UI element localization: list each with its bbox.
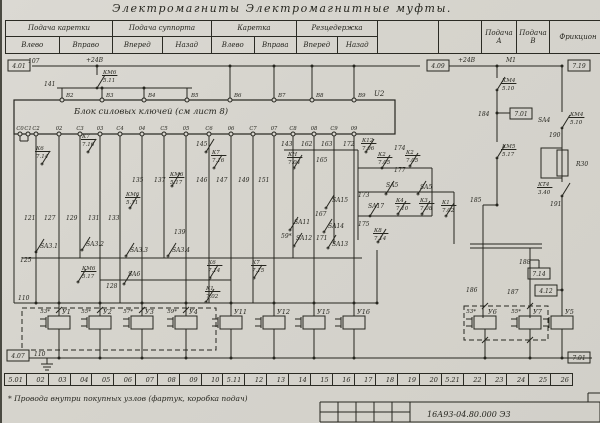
coil-У3 (131, 316, 153, 329)
zone-cell: 23 (485, 373, 508, 386)
zone-cell: 20 (419, 373, 442, 386)
junction-dot (143, 87, 146, 90)
terminal-label: С3 (76, 126, 84, 132)
junction-dot (35, 302, 38, 305)
zone-cell: 5.01 (4, 373, 27, 386)
wire-label: SA5 (420, 184, 432, 191)
terminal (184, 132, 188, 136)
terminal-label: 09 (351, 126, 358, 132)
coil-label: У5 (565, 308, 574, 316)
terminal (60, 98, 64, 102)
terminal (251, 132, 255, 136)
wire-label: 59* (281, 233, 292, 240)
wire-label: 139 (174, 229, 186, 236)
coil-label: У2 (103, 308, 112, 316)
coil-label: У3 (145, 308, 154, 316)
wire-label: +24В (458, 57, 476, 64)
wire-label: 186 (466, 287, 478, 294)
wire-label: 125 (20, 257, 32, 264)
sheet-ref-label: 7.14 (532, 271, 546, 278)
wire-label: SA15 (332, 197, 348, 204)
contact-ref-sheet: 7.06 (362, 146, 375, 152)
wire-label: 53* (40, 309, 50, 315)
junction-dot (496, 204, 499, 207)
sheet-ref-label: 4.09 (430, 63, 445, 70)
schematic-canvas: Блок силовых ключей (см лист 8)В2В3В4В5В… (2, 0, 600, 423)
zone-cell: 02 (26, 373, 49, 386)
junction-dot (273, 65, 276, 68)
wire-label: 141 (44, 81, 55, 88)
zone-cell: 17 (354, 373, 377, 386)
terminal-label: В4 (147, 93, 156, 99)
switch-contact (562, 115, 570, 128)
schematic-sheet: Электромагниты Электромагнитные муфты. П… (0, 0, 600, 423)
terminal (272, 98, 276, 102)
wire-label: 175 (358, 221, 370, 228)
zone-cell: 16 (332, 373, 355, 386)
resistor-body (541, 148, 562, 178)
coil-У4 (175, 316, 197, 329)
wire-label: 188 (519, 259, 531, 266)
terminal (118, 132, 122, 136)
zone-cell: 12 (244, 373, 267, 386)
wire-label: 127 (44, 215, 56, 222)
zone-cell: 5.21 (441, 373, 464, 386)
wire-label: 107 (28, 58, 40, 65)
wire-label: 137 (154, 177, 166, 184)
coil-У12 (263, 316, 285, 329)
terminal-label: С4 (116, 126, 123, 132)
coil-У6 (474, 316, 496, 329)
zone-ruler: 5.010203040506070809105.1112131415161718… (5, 373, 573, 388)
zone-cell: 08 (157, 373, 180, 386)
terminal-label: В7 (277, 93, 286, 99)
terminal (140, 132, 144, 136)
wire-label: 131 (88, 215, 99, 222)
wire-label: SA3.2 (86, 241, 104, 248)
wire-label: 128 (106, 283, 118, 290)
terminal-label: В2 (65, 93, 74, 99)
terminal-label: 07 (271, 126, 278, 132)
zone-cell: 19 (397, 373, 420, 386)
terminal-label: В8 (315, 93, 324, 99)
terminal-label: С7 (249, 126, 257, 132)
terminal (272, 132, 276, 136)
terminal-label: С6 (205, 126, 213, 132)
zone-cell: 06 (113, 373, 136, 386)
wire-label: 171 (316, 235, 327, 242)
contact-ref-sheet: 7.14 (36, 154, 49, 160)
wire-label: +24В (86, 57, 104, 64)
terminal (142, 98, 146, 102)
terminal (18, 132, 22, 136)
zone-cell: 22 (463, 373, 486, 386)
zone-cell: 13 (266, 373, 289, 386)
wire-label: 133 (108, 215, 120, 222)
wire-label: 147 (216, 177, 228, 184)
terminal (100, 98, 104, 102)
coil-label: У6 (488, 308, 497, 316)
contact-ref-sheet: 7.05 (378, 160, 391, 166)
wire-label: SA6 (128, 271, 140, 278)
contact-ref-sheet: 7.02 (442, 208, 455, 214)
contact-ref-sheet: 3.40 (538, 190, 551, 196)
zone-cell: 15 (310, 373, 333, 386)
terminal (332, 132, 336, 136)
footnote: * Провода внутри покупных узлов (фартук,… (8, 394, 248, 403)
coil-label: У16 (357, 308, 370, 316)
wire-label: 184 (478, 111, 490, 118)
power-switch-block-label: Блок силовых ключей (см лист 8) (73, 106, 228, 117)
wire-label: 110 (34, 351, 46, 358)
junction-dot (561, 289, 564, 292)
zone-cell: 14 (288, 373, 311, 386)
contact-ref-sheet: 7.10 (396, 206, 409, 212)
coil-У5 (551, 316, 573, 329)
contact-ref-sheet: 5.11 (103, 78, 115, 84)
contact-ref-sheet: 7.02 (206, 294, 219, 300)
contact-ref-sheet: 5.10 (502, 86, 515, 92)
wire-label: SA17 (368, 203, 384, 210)
sheet-ref-label: 7.19 (572, 63, 586, 70)
wire-label: 177 (394, 167, 406, 174)
junction-dot (353, 65, 356, 68)
wire-label: 187 (507, 289, 519, 296)
terminal-label: С8 (289, 126, 297, 132)
wire-label: 151 (258, 177, 269, 184)
terminal (185, 98, 189, 102)
wire-label: SA12 (296, 235, 312, 242)
zone-cell: 10 (201, 373, 224, 386)
contact-ref-sheet: 7.14 (374, 236, 387, 242)
terminal-label: С9 (330, 126, 338, 132)
wire-label: 110 (18, 295, 30, 302)
contact-ref-sheet: 7.16 (82, 142, 95, 148)
terminal-label: С2 (32, 126, 39, 132)
wire-label: SA3.1 (40, 243, 58, 250)
terminal-label: 06 (228, 126, 235, 132)
wire-label: 149 (238, 177, 250, 184)
zone-cell: 09 (179, 373, 202, 386)
coil-label: У1 (62, 308, 71, 316)
contact-ref-sheet: 7.04 (288, 160, 301, 166)
sheet-ref-label: 7.01 (514, 111, 527, 118)
zone-cell: 04 (70, 373, 93, 386)
wire-label: М1 (505, 57, 516, 64)
junction-dot (96, 65, 99, 68)
terminal (352, 98, 356, 102)
wire-label: 59* (167, 309, 177, 315)
junction-dot (496, 65, 499, 68)
wire-label: 57* (123, 309, 133, 315)
terminal-label: С1 (24, 126, 31, 132)
wire-label: 55* (511, 309, 521, 315)
contact-ref-sheet: 7.15 (252, 268, 265, 274)
zone-cell: 07 (135, 373, 158, 386)
terminal-label: 03 (97, 126, 104, 132)
sheet-ref-label: 4.07 (10, 353, 25, 360)
coil-У11 (220, 316, 242, 329)
wire-label: 16А93-04.80.000 Э3 (427, 410, 511, 419)
wire-label: 135 (132, 177, 144, 184)
wire-label: 190 (549, 132, 561, 139)
contact-ref-sheet: 5.11 (126, 200, 138, 206)
terminal (228, 98, 232, 102)
wire-label: 172 (343, 141, 355, 148)
coil-label: У12 (277, 308, 290, 316)
sheet-ref-label: 7.01 (572, 355, 585, 362)
wire-label: 129 (66, 215, 78, 222)
terminal (310, 98, 314, 102)
sheet-ref-label: 4.12 (538, 288, 553, 295)
contact-ref-sheet: 5.17 (170, 180, 183, 186)
wire-label: SA3.3 (130, 247, 148, 254)
wire-label: SA13 (332, 241, 348, 248)
wire-label: 185 (470, 197, 482, 204)
junction-dot (229, 65, 232, 68)
contact-ref-sheet: 7.08 (420, 206, 433, 212)
zone-cell: 24 (506, 373, 529, 386)
wire-label: 167 (315, 211, 327, 218)
terminal-label: С0 (16, 126, 24, 132)
coil-У15 (303, 316, 325, 329)
zone-cell: 03 (48, 373, 71, 386)
coil-label: У7 (533, 308, 543, 316)
terminal (207, 132, 211, 136)
coil-label: У15 (317, 308, 330, 316)
wire-label: SA14 (328, 223, 344, 230)
junction-dot (496, 112, 499, 115)
terminal (162, 132, 166, 136)
terminal-label: 05 (183, 126, 190, 132)
coil-У16 (343, 316, 365, 329)
zone-cell: 25 (528, 373, 551, 386)
terminal-label: С5 (160, 126, 167, 132)
terminal (98, 132, 102, 136)
wire-label: SA11 (294, 219, 310, 226)
wire-label: 145 (196, 141, 208, 148)
wire-label: 165 (316, 157, 328, 164)
coil-У1 (48, 316, 70, 329)
terminal-label: 08 (311, 126, 318, 132)
switch-contact (562, 183, 570, 196)
sheet-ref-label: 4.01 (11, 63, 25, 70)
wire-label: 55* (81, 309, 91, 315)
zone-cell: 05 (91, 373, 114, 386)
terminal-label: В6 (233, 93, 242, 99)
contact-ref-sheet: 7.16 (212, 158, 225, 164)
wire-label: 146 (196, 177, 208, 184)
wire-label: R30 (575, 161, 588, 168)
coil-label: У4 (189, 308, 198, 316)
contact-ref-sheet: 5.17 (82, 274, 95, 280)
terminal (26, 132, 30, 136)
wire-label: SA5 (386, 182, 398, 189)
terminal (229, 132, 233, 136)
terminal-label: В3 (105, 93, 114, 99)
terminal-label: 02 (56, 126, 63, 132)
junction-dot (311, 65, 314, 68)
wire-label: 191 (550, 201, 561, 208)
wire-label: 163 (321, 141, 333, 148)
junction-dot (101, 87, 104, 90)
terminal (291, 132, 295, 136)
contact-ref-sheet: 7.14 (208, 268, 221, 274)
terminal (312, 132, 316, 136)
terminal-label: 04 (139, 126, 146, 132)
terminal-label: В5 (190, 93, 199, 99)
wire-label: 173 (358, 192, 370, 199)
zone-cell: 18 (375, 373, 398, 386)
contact-ref-sheet: 7.05 (406, 158, 419, 164)
terminal-label: В9 (357, 93, 366, 99)
contact-ref-sheet: 5.10 (570, 120, 583, 126)
wire-label: 143 (281, 141, 293, 148)
wire-label: U2 (374, 90, 385, 98)
zone-cell: 26 (550, 373, 573, 386)
terminal (57, 132, 61, 136)
junction-dot (376, 302, 379, 305)
coil-У2 (89, 316, 111, 329)
terminal (352, 132, 356, 136)
wire-label: SA4 (538, 117, 550, 124)
wire-label: 53* (466, 309, 476, 315)
terminal (34, 132, 38, 136)
zone-cell: 5.11 (222, 373, 245, 386)
junction-dot (561, 65, 564, 68)
wire-label: 174 (394, 145, 406, 152)
wire-label: 162 (301, 141, 313, 148)
wire-label: 121 (24, 215, 35, 222)
contact-ref-sheet: 5.17 (502, 152, 515, 158)
wire-label: SA3.4 (172, 247, 190, 254)
coil-label: У11 (234, 308, 247, 316)
